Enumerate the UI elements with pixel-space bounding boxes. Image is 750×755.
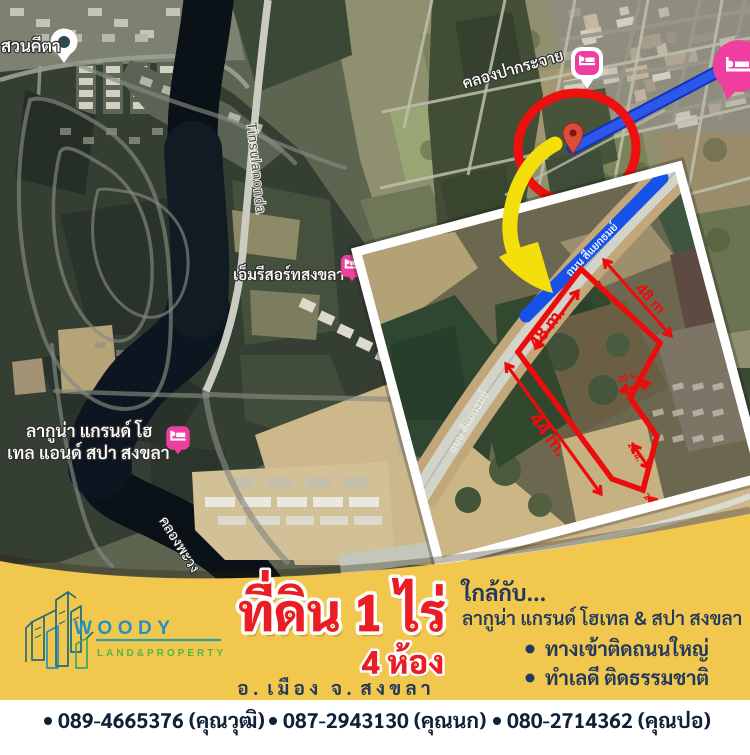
svg-text:LAND&PROPERTY: LAND&PROPERTY — [97, 648, 226, 659]
svg-text:WOODY: WOODY — [74, 618, 175, 639]
